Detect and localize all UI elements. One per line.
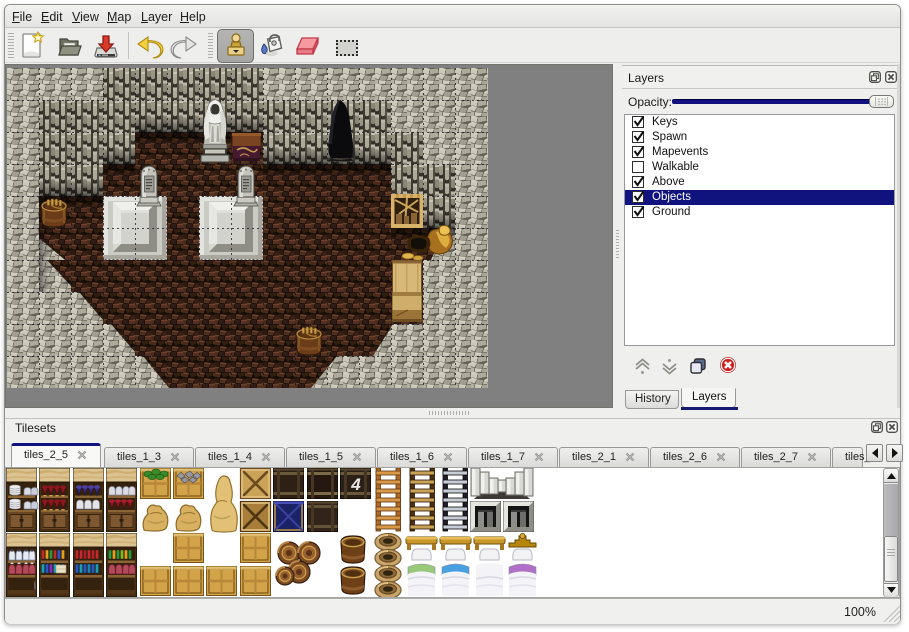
svg-text:4: 4	[350, 475, 361, 494]
